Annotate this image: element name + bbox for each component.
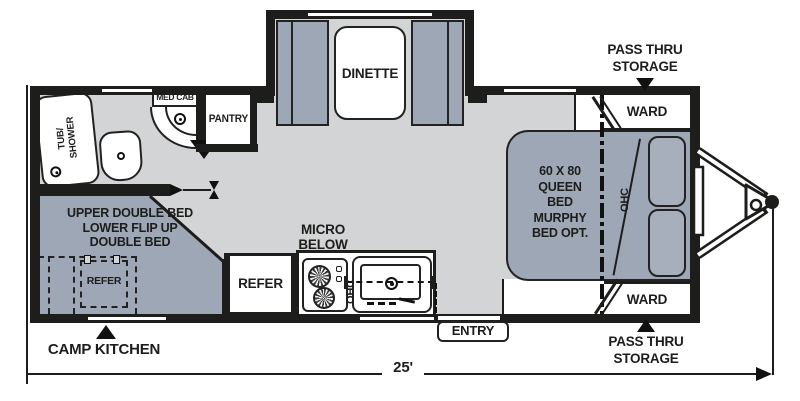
bath-pantry-wall <box>196 86 206 148</box>
galley-refer-label: REFER <box>238 276 283 291</box>
slideout-right-wall <box>465 10 474 96</box>
galley-ohc-label: OHC <box>345 268 359 316</box>
door-hinge-icon <box>209 181 219 190</box>
divider-door-line <box>183 189 211 191</box>
bath-faucet-icon <box>174 113 186 125</box>
door-hinge-icon-2 <box>209 190 219 199</box>
hitch-jack-icon <box>751 200 761 210</box>
entry-label-box: ENTRY <box>437 321 509 342</box>
top-wall-right <box>468 86 700 95</box>
ward-bottom: WARD <box>604 281 690 315</box>
slideout-corner-stub-left <box>256 86 274 103</box>
galley-window <box>360 315 434 322</box>
kitchen-faucet-icon <box>385 277 398 290</box>
dimension-witness-right <box>772 207 774 375</box>
refer-latch-left <box>84 255 91 264</box>
pillow <box>648 209 686 277</box>
dimension-witness-left <box>26 85 28 384</box>
camp-kitchen-arrow-icon <box>96 325 116 339</box>
bedroom-ohc-label: OHC <box>619 176 633 224</box>
galley-refer: REFER <box>224 253 296 315</box>
bedroom-partition-line-bottom <box>502 279 504 315</box>
dimension-line-left <box>26 373 382 375</box>
murphy-bed-label: 60 X 80 QUEEN BED MURPHY BED OPT. <box>508 164 612 242</box>
bath-divider-wall <box>38 184 170 196</box>
slideout-window <box>308 11 432 18</box>
ward-bottom-label: WARD <box>627 292 667 307</box>
stove <box>302 258 348 312</box>
ward-top-label: WARD <box>627 104 667 119</box>
pantry: PANTRY <box>206 95 250 144</box>
pillow <box>648 136 686 207</box>
rear-wall <box>30 86 40 323</box>
hitch-tongue <box>690 135 790 265</box>
floorplan: UPPER DOUBLE BED LOWER FLIP UP DOUBLE BE… <box>0 0 800 401</box>
camp-kitchen-hatch <box>88 315 166 322</box>
toilet <box>98 130 143 183</box>
galley-ohc-dash-line <box>346 281 434 283</box>
galley-ohc-dash-corner <box>435 283 437 313</box>
burner-icon <box>308 265 331 288</box>
camp-kitchen-refer-label: REFER <box>80 276 128 288</box>
stove-knob <box>336 266 342 272</box>
slideout-corner-stub-right <box>468 86 487 103</box>
camp-kitchen-divider-2 <box>73 256 75 314</box>
camp-kitchen-divider-1 <box>48 256 50 314</box>
dinette-label: DINETTE <box>320 66 420 81</box>
entry-label: ENTRY <box>452 324 495 339</box>
tub-drain-icon <box>50 166 62 178</box>
galley-ohc-tick-right <box>431 276 434 289</box>
tub-shower: TUB/ SHOWER <box>33 91 100 189</box>
bedroom-floor-strip <box>504 279 604 315</box>
pantry-bottom-wall <box>196 144 258 152</box>
pass-thru-bottom-arrow-icon <box>637 319 655 332</box>
dimension-arrow-icon <box>756 367 772 381</box>
micro-below-label: MICRO BELOW <box>288 222 358 252</box>
pantry-label: PANTRY <box>208 113 247 125</box>
burner-icon <box>313 287 335 309</box>
stove-knob <box>336 276 342 282</box>
dimension-line-right <box>424 373 756 375</box>
bedroom-partition-line-top <box>574 95 576 133</box>
bath-window <box>102 87 152 94</box>
entry-opening <box>438 315 500 320</box>
pass-thru-top-arrow-icon <box>636 78 654 91</box>
refer-latch-right <box>113 255 120 264</box>
tub-shower-label: TUB/ SHOWER <box>52 102 81 174</box>
kitchen-sink <box>352 256 432 313</box>
pass-thru-top-label: PASS THRU STORAGE <box>593 42 697 75</box>
slideout-left-wall <box>266 10 275 96</box>
pass-thru-bottom-label: PASS THRU STORAGE <box>594 334 698 367</box>
camp-kitchen-label: CAMP KITCHEN <box>36 342 172 359</box>
dimension-length-label: 25' <box>382 360 424 377</box>
rear-bed-label: UPPER DOUBLE BED LOWER FLIP UP DOUBLE BE… <box>40 206 220 250</box>
bath-divider-wall-tip <box>170 184 183 196</box>
bedroom-window <box>504 87 576 94</box>
